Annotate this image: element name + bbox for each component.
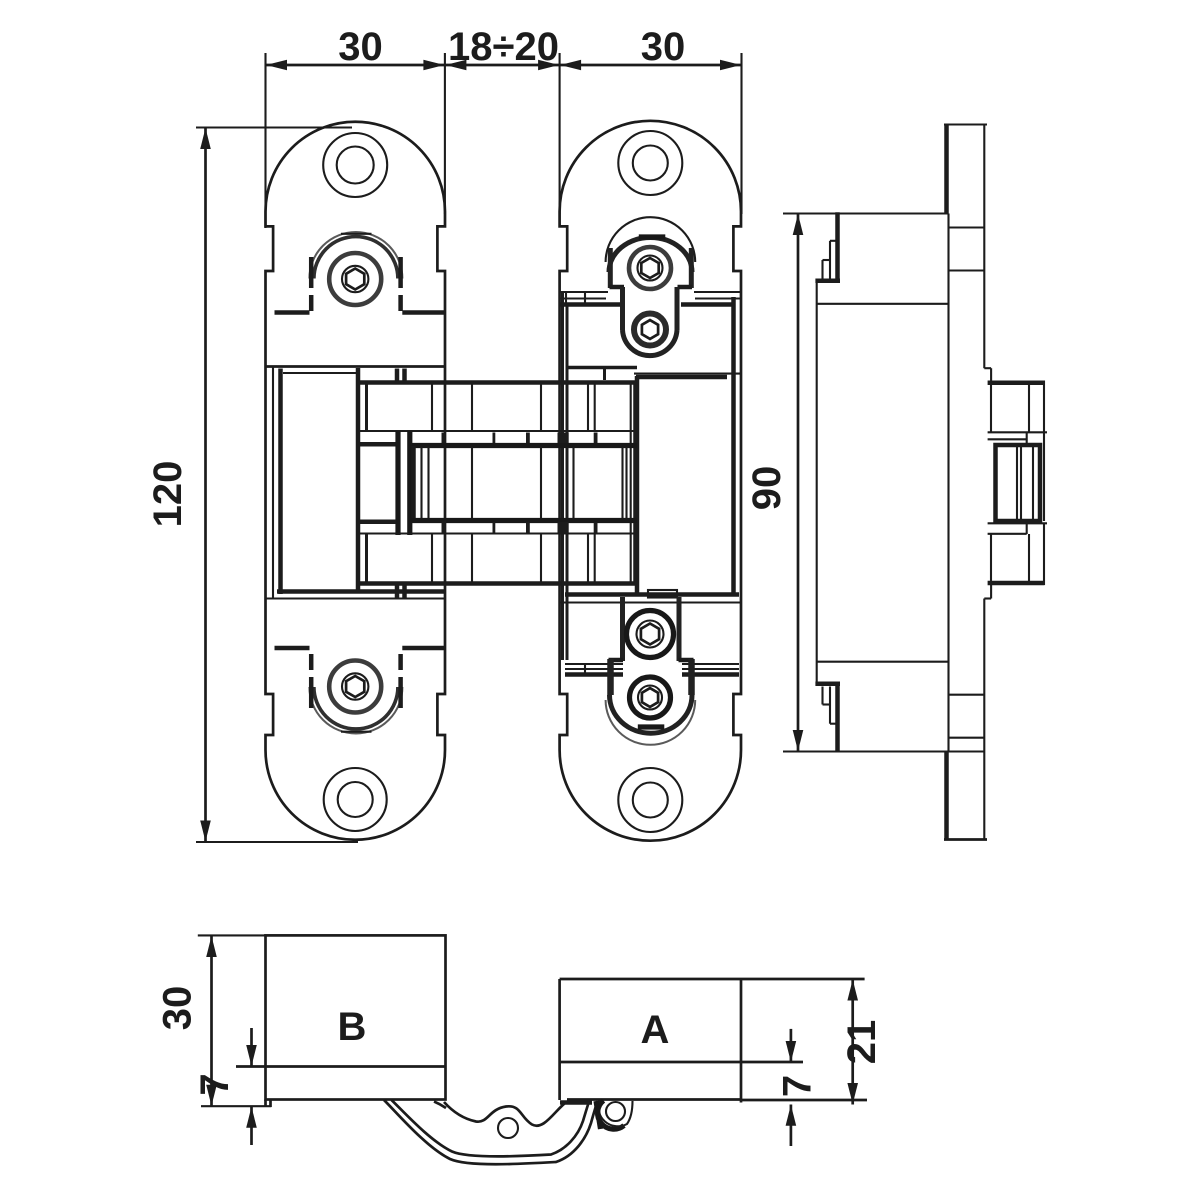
svg-text:30: 30 — [156, 986, 200, 1031]
svg-text:B: B — [338, 1005, 367, 1049]
svg-text:18÷20: 18÷20 — [448, 25, 559, 69]
svg-text:7: 7 — [776, 1075, 820, 1097]
svg-text:120: 120 — [146, 461, 190, 528]
svg-text:21: 21 — [840, 1020, 884, 1065]
svg-text:30: 30 — [338, 25, 383, 69]
svg-text:90: 90 — [745, 466, 789, 511]
svg-text:A: A — [641, 1008, 670, 1052]
svg-text:30: 30 — [641, 25, 686, 69]
svg-text:7: 7 — [193, 1073, 237, 1095]
